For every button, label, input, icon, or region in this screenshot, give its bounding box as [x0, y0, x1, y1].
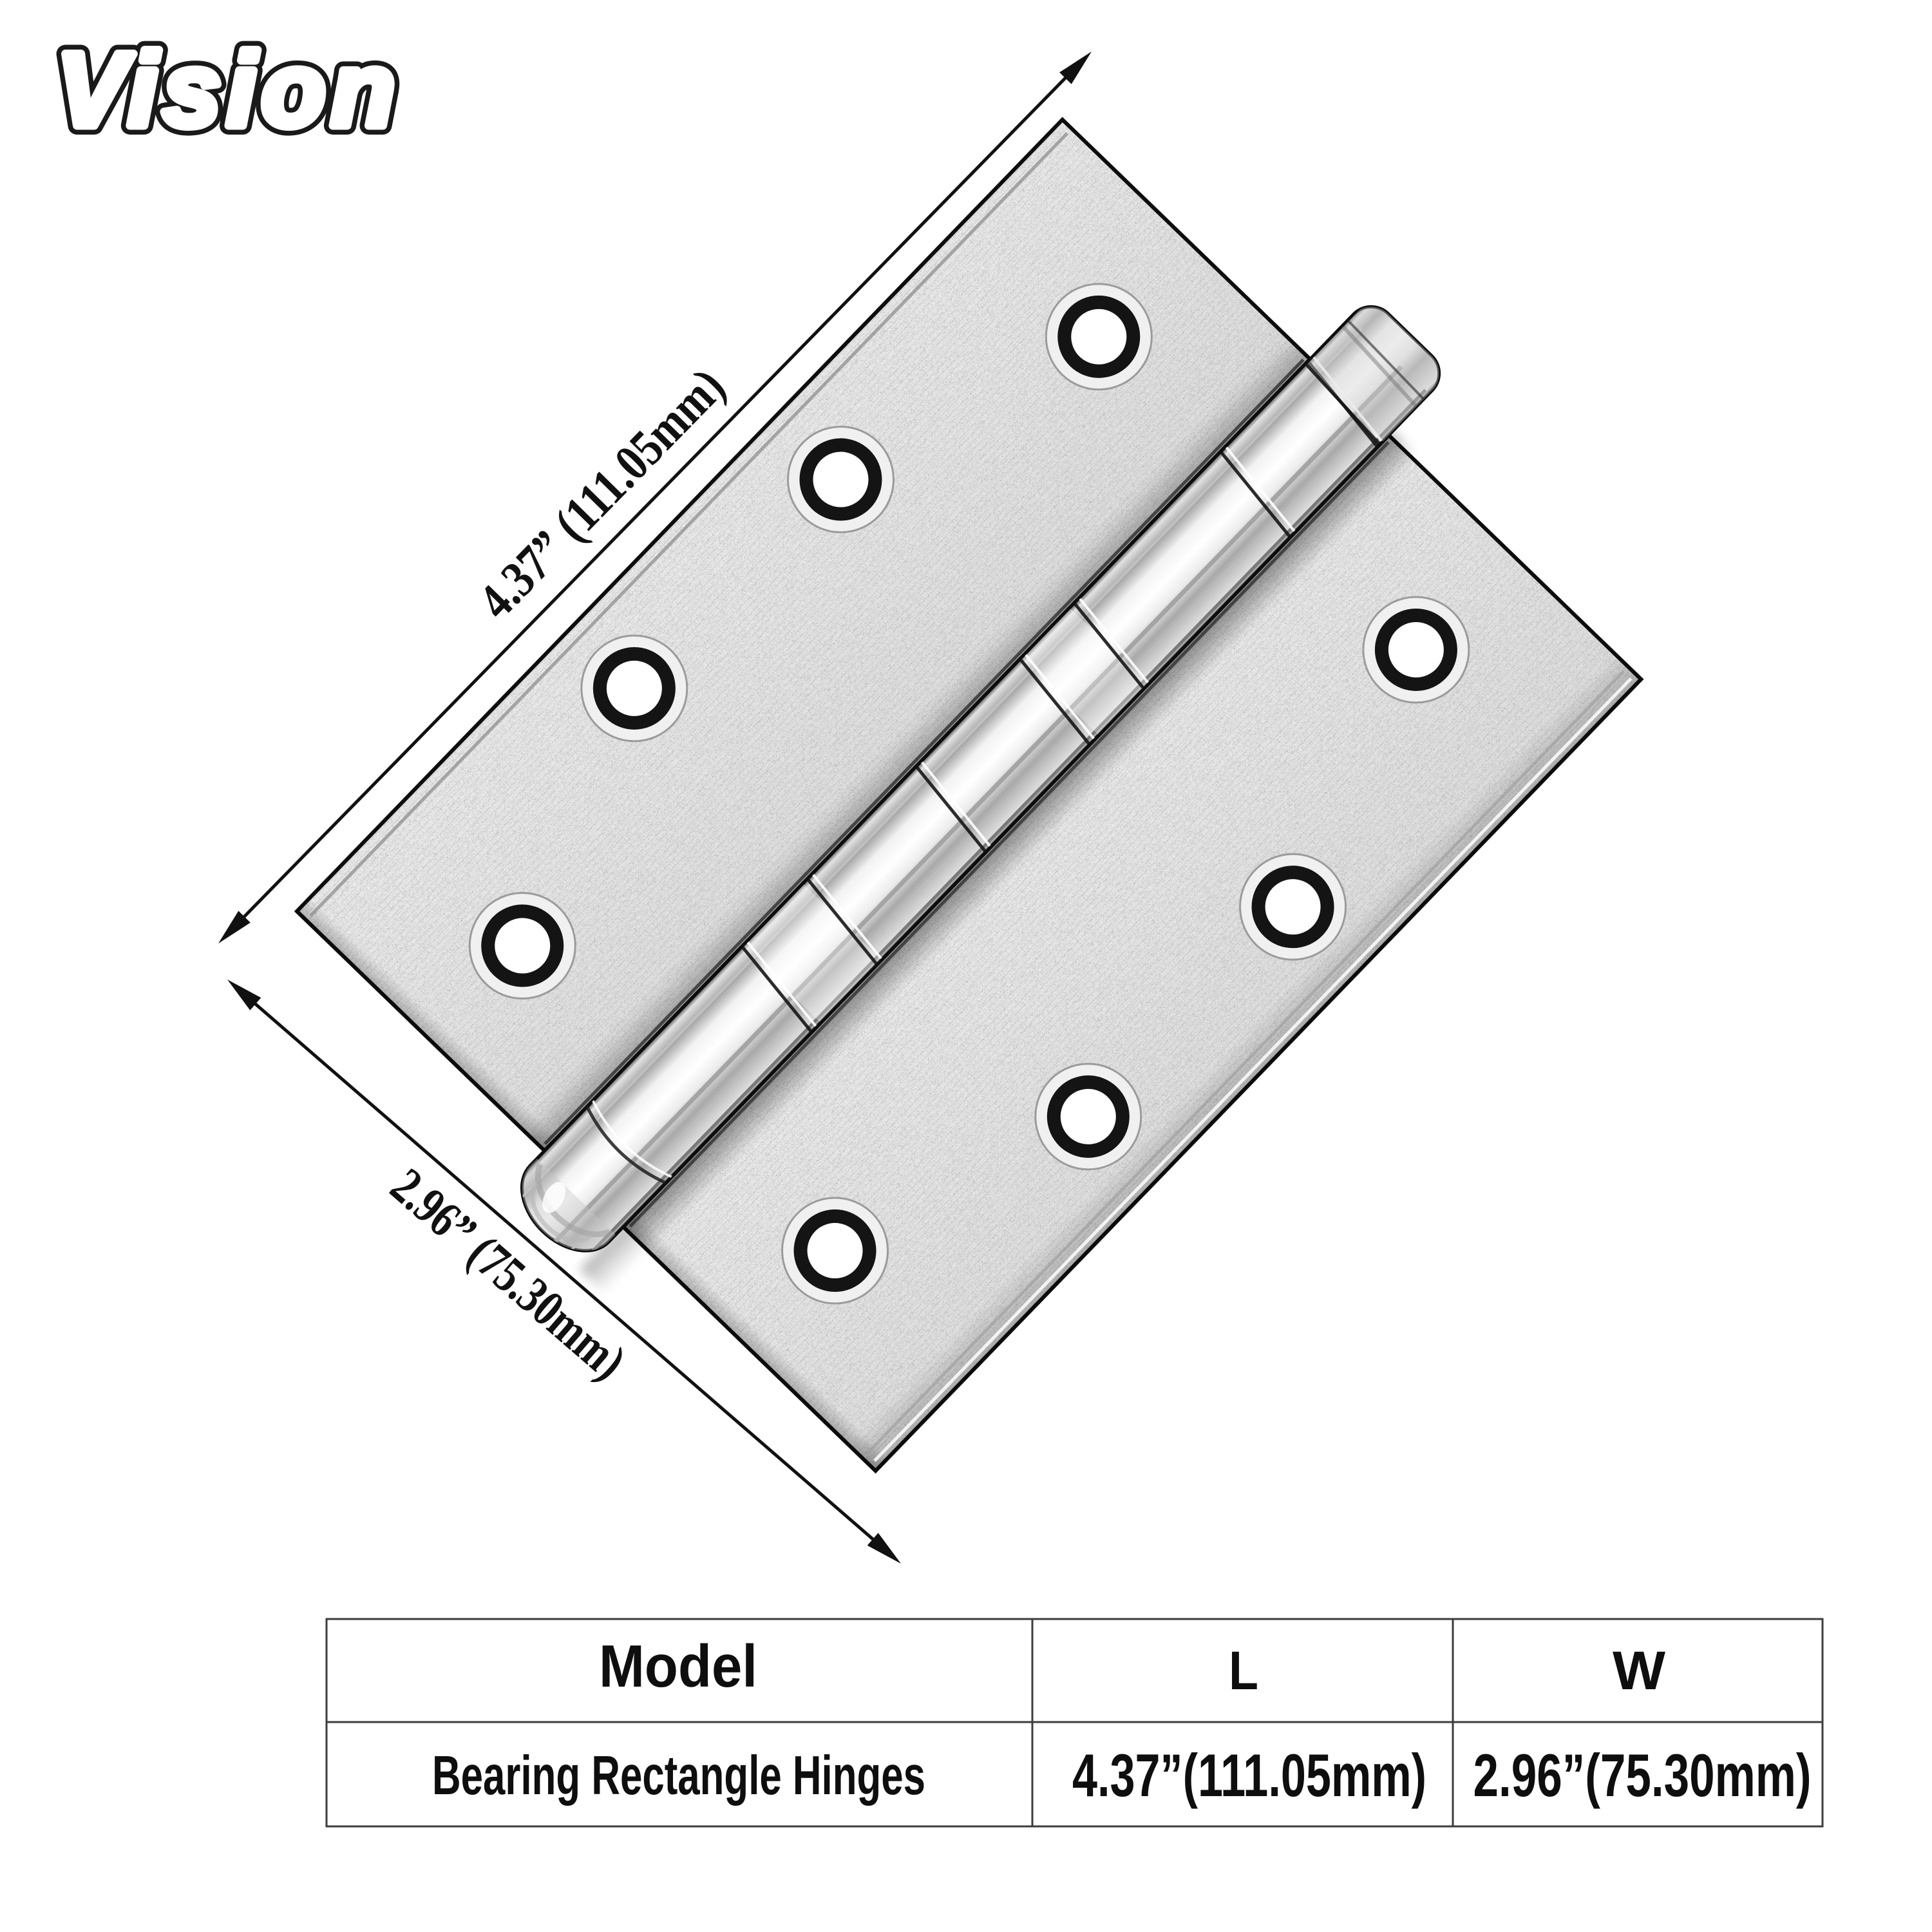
svg-text:Bearing Rectangle Hinges: Bearing Rectangle Hinges — [432, 1745, 925, 1806]
svg-text:Model: Model — [599, 1633, 757, 1700]
svg-text:4.37”(111.05mm): 4.37”(111.05mm) — [1072, 1741, 1426, 1809]
svg-text:L: L — [1229, 1640, 1258, 1701]
svg-text:2.96”(75.30mm): 2.96”(75.30mm) — [1473, 1741, 1812, 1809]
svg-text:W: W — [1613, 1640, 1666, 1701]
svg-text:Vision: Vision — [57, 32, 401, 148]
